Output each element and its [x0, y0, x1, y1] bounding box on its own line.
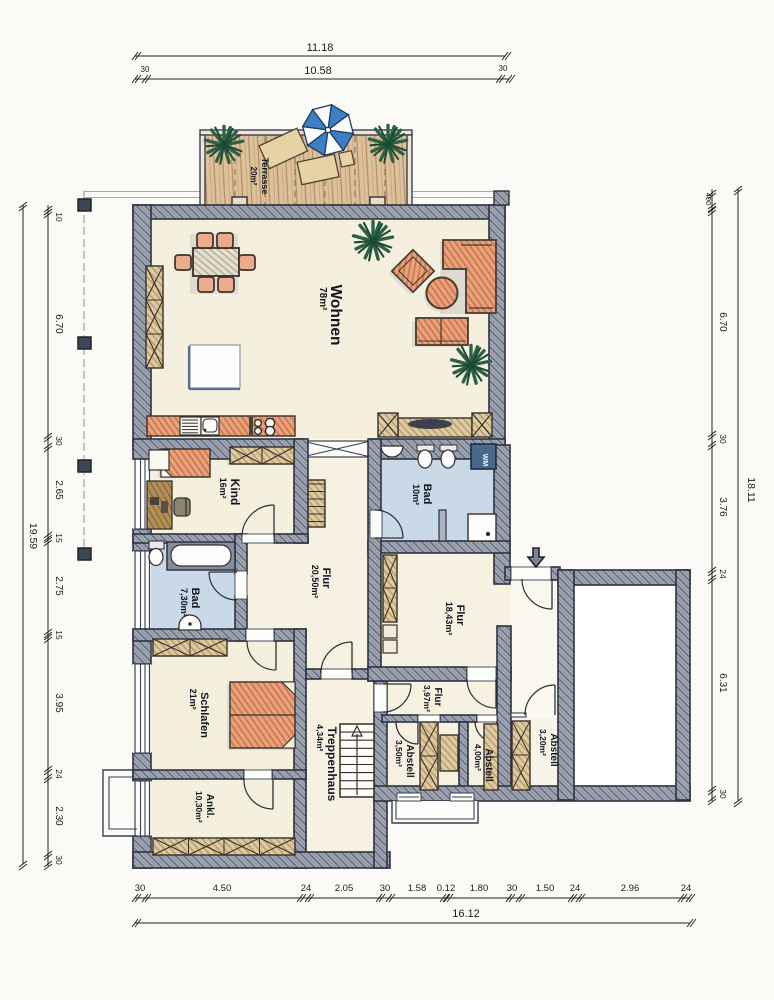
svg-text:15: 15 — [54, 630, 64, 640]
svg-text:Bad: Bad — [421, 484, 433, 505]
svg-text:2.30: 2.30 — [53, 806, 64, 826]
svg-text:24: 24 — [301, 883, 312, 894]
svg-text:Kind: Kind — [228, 479, 242, 506]
svg-text:Terrasse: Terrasse — [260, 158, 270, 195]
svg-text:18,43m²: 18,43m² — [444, 602, 454, 636]
svg-text:10: 10 — [54, 212, 64, 222]
svg-text:30: 30 — [380, 883, 391, 894]
svg-text:21m²: 21m² — [188, 689, 198, 710]
svg-text:30: 30 — [141, 65, 150, 74]
svg-text:2.75: 2.75 — [53, 576, 64, 596]
svg-text:Abstell: Abstell — [404, 744, 415, 778]
svg-text:1.80: 1.80 — [470, 883, 489, 894]
svg-text:30: 30 — [54, 436, 64, 446]
svg-text:15: 15 — [54, 533, 64, 543]
svg-text:6.70: 6.70 — [717, 312, 728, 332]
svg-text:3,50m²: 3,50m² — [394, 740, 404, 767]
svg-text:24: 24 — [681, 883, 692, 894]
svg-text:16m²: 16m² — [218, 478, 228, 499]
svg-text:2.96: 2.96 — [621, 883, 640, 894]
svg-text:19.59: 19.59 — [27, 523, 39, 549]
svg-text:2.05: 2.05 — [335, 883, 354, 894]
svg-text:Abstell: Abstell — [483, 748, 494, 782]
svg-text:24: 24 — [54, 769, 64, 779]
svg-text:10m²: 10m² — [411, 484, 421, 505]
svg-text:4,34m²: 4,34m² — [315, 724, 325, 751]
svg-text:24: 24 — [570, 883, 581, 894]
svg-text:3,20m²: 3,20m² — [538, 729, 548, 756]
svg-text:Flur: Flur — [454, 605, 466, 626]
svg-text:Wohnen: Wohnen — [327, 285, 344, 346]
svg-text:16.12: 16.12 — [452, 908, 480, 920]
svg-text:Schlafen: Schlafen — [198, 692, 210, 738]
svg-text:7,30m²: 7,30m² — [179, 588, 189, 617]
svg-text:3,97m²: 3,97m² — [422, 685, 432, 712]
svg-text:78m²: 78m² — [317, 287, 328, 311]
svg-text:30: 30 — [507, 883, 518, 894]
svg-text:10,30m²: 10,30m² — [194, 791, 204, 823]
svg-text:24: 24 — [718, 569, 728, 579]
svg-text:3.76: 3.76 — [717, 497, 728, 517]
svg-text:30: 30 — [718, 789, 728, 799]
svg-text:20,50m²: 20,50m² — [310, 565, 320, 599]
svg-text:Flur: Flur — [320, 568, 332, 589]
svg-text:11.18: 11.18 — [307, 42, 334, 54]
svg-text:30: 30 — [718, 434, 728, 444]
svg-text:1.58: 1.58 — [408, 883, 427, 894]
svg-text:6.70: 6.70 — [53, 314, 64, 334]
svg-text:1.50: 1.50 — [536, 883, 555, 894]
svg-text:Abstell: Abstell — [548, 733, 559, 767]
svg-text:Treppenhaus: Treppenhaus — [325, 727, 339, 802]
svg-text:Ankl.: Ankl. — [204, 794, 215, 819]
svg-text:2.65: 2.65 — [53, 480, 64, 500]
svg-text:Flur: Flur — [432, 688, 443, 707]
svg-text:20m²: 20m² — [249, 167, 258, 186]
svg-text:WM: WM — [481, 454, 488, 467]
svg-text:4.50: 4.50 — [213, 883, 232, 894]
svg-text:400: 400 — [704, 193, 713, 206]
svg-text:30: 30 — [499, 64, 508, 73]
svg-text:30: 30 — [135, 883, 146, 894]
svg-text:3.95: 3.95 — [53, 693, 64, 713]
svg-text:6.31: 6.31 — [717, 673, 728, 693]
svg-text:18.11: 18.11 — [745, 477, 757, 503]
svg-text:0.12: 0.12 — [437, 883, 456, 894]
svg-text:4,00m²: 4,00m² — [473, 744, 483, 771]
svg-text:30: 30 — [54, 855, 64, 865]
svg-text:Bad: Bad — [189, 588, 201, 609]
svg-text:10.58: 10.58 — [304, 65, 332, 77]
